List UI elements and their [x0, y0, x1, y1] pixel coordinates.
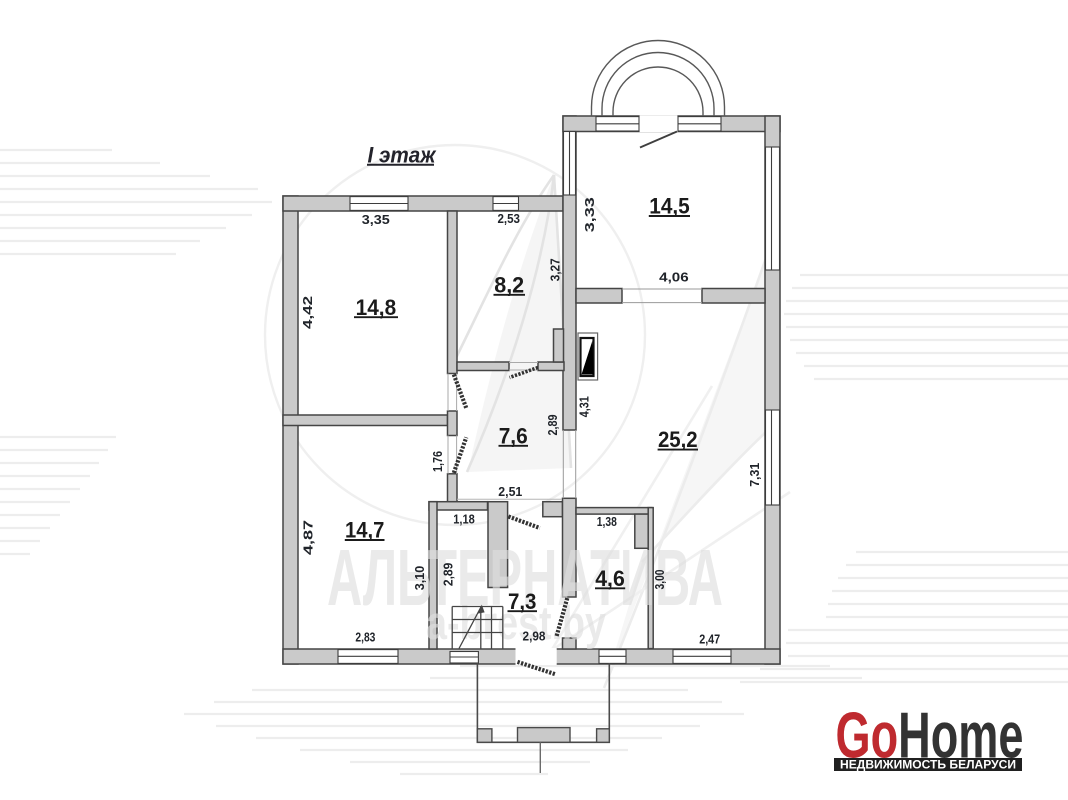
- svg-text:3,33: 3,33: [583, 197, 597, 232]
- svg-text:1,76: 1,76: [431, 451, 445, 472]
- svg-text:НЕДВИЖИМОСТЬ БЕЛАРУСИ: НЕДВИЖИМОСТЬ БЕЛАРУСИ: [840, 759, 1016, 771]
- svg-text:3,35: 3,35: [362, 213, 390, 227]
- svg-text:7,31: 7,31: [748, 463, 762, 487]
- svg-text:14,5: 14,5: [649, 194, 690, 219]
- svg-text:2,83: 2,83: [355, 631, 375, 645]
- svg-text:3,27: 3,27: [549, 258, 563, 281]
- svg-text:2,89: 2,89: [546, 415, 560, 436]
- svg-text:2,47: 2,47: [699, 632, 720, 646]
- svg-text:4,42: 4,42: [301, 296, 315, 329]
- svg-text:7,6: 7,6: [499, 423, 528, 448]
- svg-text:3,00: 3,00: [653, 570, 667, 590]
- svg-text:4,06: 4,06: [659, 271, 689, 285]
- svg-text:4,31: 4,31: [578, 396, 592, 417]
- svg-text:4,6: 4,6: [595, 566, 625, 591]
- svg-text:1,38: 1,38: [597, 515, 617, 529]
- svg-text:25,2: 25,2: [658, 427, 698, 452]
- svg-text:2,51: 2,51: [498, 485, 522, 499]
- svg-text:2,98: 2,98: [523, 629, 546, 643]
- svg-text:7,3: 7,3: [508, 589, 537, 614]
- svg-text:3,10: 3,10: [413, 566, 427, 591]
- svg-text:14,7: 14,7: [345, 518, 384, 543]
- svg-text:14,8: 14,8: [356, 295, 397, 320]
- svg-text:8,2: 8,2: [494, 272, 524, 297]
- svg-text:2,89: 2,89: [441, 563, 455, 587]
- svg-text:4,87: 4,87: [302, 520, 316, 555]
- svg-text:1,18: 1,18: [453, 513, 475, 527]
- svg-text:2,53: 2,53: [497, 212, 520, 226]
- svg-text:I этаж: I этаж: [368, 143, 438, 168]
